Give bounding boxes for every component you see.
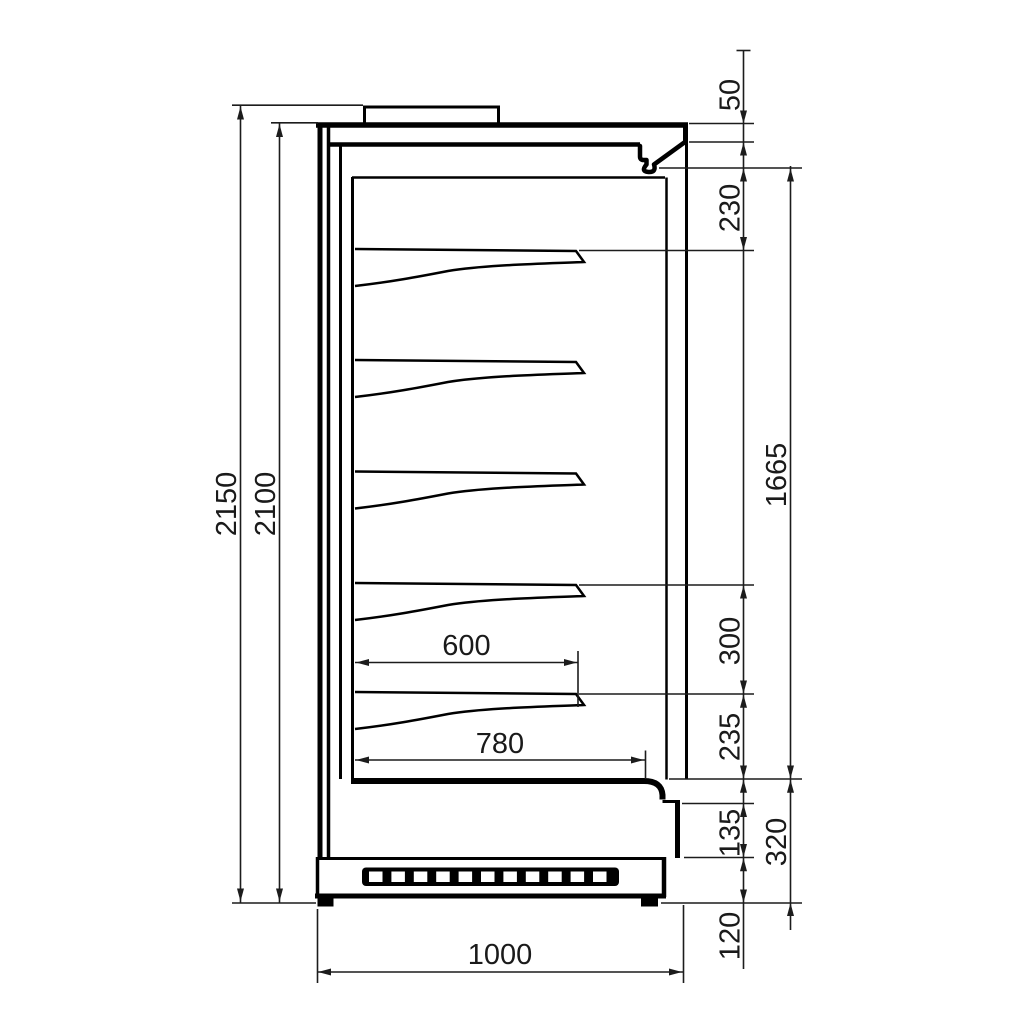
dim-label-canopy-to-first-shelf: 230	[715, 184, 747, 232]
dim-label-deck-depth: 780	[476, 728, 524, 760]
shelf-2	[355, 360, 584, 397]
top-unit-block	[365, 107, 499, 123]
dim-label-last-shelf-to-deck: 235	[715, 713, 747, 761]
shelf-1	[355, 249, 584, 286]
dimension-lines	[241, 50, 791, 972]
dim-label-shelf-spacing: 300	[715, 617, 747, 665]
right-foot	[641, 898, 658, 907]
dim-label-shelf-depth: 600	[442, 630, 490, 662]
left-foot	[318, 898, 334, 907]
cabinet-section-drawing: 2150 2100 50 230 1665 300 235 135 320 12…	[0, 0, 1024, 1024]
dim-label-cabinet-height: 2100	[250, 472, 282, 537]
shelf-4	[355, 583, 584, 620]
dim-label-front-panel-height: 135	[715, 809, 747, 857]
dimension-labels: 2150 2100 50 230 1665 300 235 135 320 12…	[211, 79, 793, 971]
dim-label-overall-height: 2150	[211, 472, 243, 537]
dim-label-plinth-height: 120	[715, 912, 747, 960]
dim-label-base-section-height: 320	[761, 818, 793, 866]
shelf-3	[355, 472, 584, 509]
dim-label-overall-depth: 1000	[468, 939, 533, 971]
shelf-5	[355, 692, 584, 729]
drawing-sheet: 2150 2100 50 230 1665 300 235 135 320 12…	[0, 0, 1024, 1024]
dim-label-display-opening: 1665	[761, 443, 793, 508]
dim-label-canopy-front-height: 50	[715, 79, 747, 111]
ventilation-grille	[362, 868, 619, 887]
bottom-deck	[351, 781, 663, 800]
